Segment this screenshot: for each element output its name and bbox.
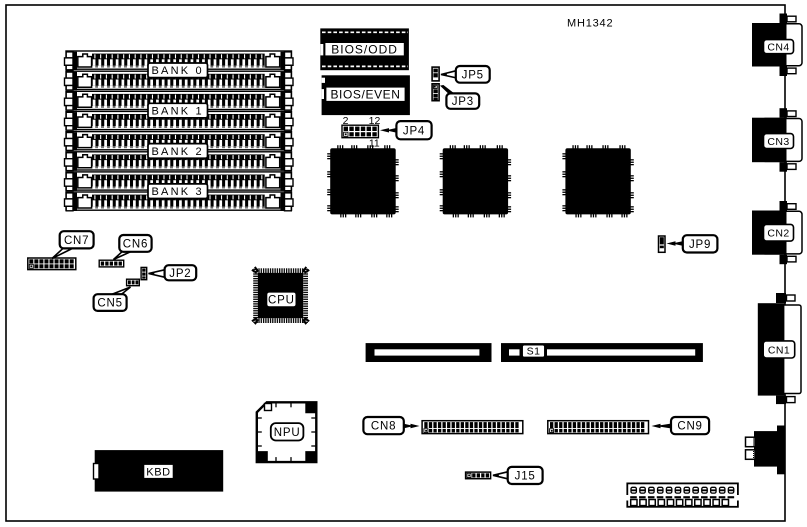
svg-text:BIOS/ODD: BIOS/ODD	[331, 43, 398, 57]
svg-text:NPU: NPU	[274, 427, 301, 439]
svg-text:BIOS/EVEN: BIOS/EVEN	[330, 87, 400, 101]
svg-text:CN9: CN9	[677, 421, 702, 433]
svg-text:J15: J15	[515, 471, 536, 483]
svg-text:S1: S1	[527, 346, 541, 358]
svg-text:CN8: CN8	[371, 421, 396, 433]
svg-text:JP9: JP9	[689, 239, 711, 251]
svg-text:JP4: JP4	[403, 125, 425, 137]
svg-text:KBD: KBD	[146, 466, 170, 478]
svg-text:BANK 0: BANK 0	[152, 65, 204, 77]
svg-text:JP5: JP5	[462, 69, 484, 81]
svg-text:MH1342: MH1342	[567, 18, 613, 30]
svg-text:CN7: CN7	[64, 235, 89, 247]
svg-text:CN2: CN2	[767, 228, 789, 240]
svg-text:2: 2	[343, 115, 349, 127]
svg-text:JP2: JP2	[169, 268, 191, 280]
svg-text:CN4: CN4	[767, 42, 789, 54]
svg-text:12: 12	[369, 115, 381, 127]
svg-text:CPU: CPU	[268, 295, 295, 307]
svg-text:CN5: CN5	[97, 298, 122, 310]
svg-text:CN6: CN6	[123, 239, 148, 251]
svg-text:BANK 2: BANK 2	[152, 146, 204, 158]
svg-text:CN3: CN3	[767, 136, 789, 148]
svg-text:BANK 3: BANK 3	[152, 186, 204, 198]
svg-text:CN1: CN1	[768, 344, 790, 356]
svg-text:JP3: JP3	[452, 96, 474, 108]
svg-text:BANK 1: BANK 1	[152, 106, 204, 118]
